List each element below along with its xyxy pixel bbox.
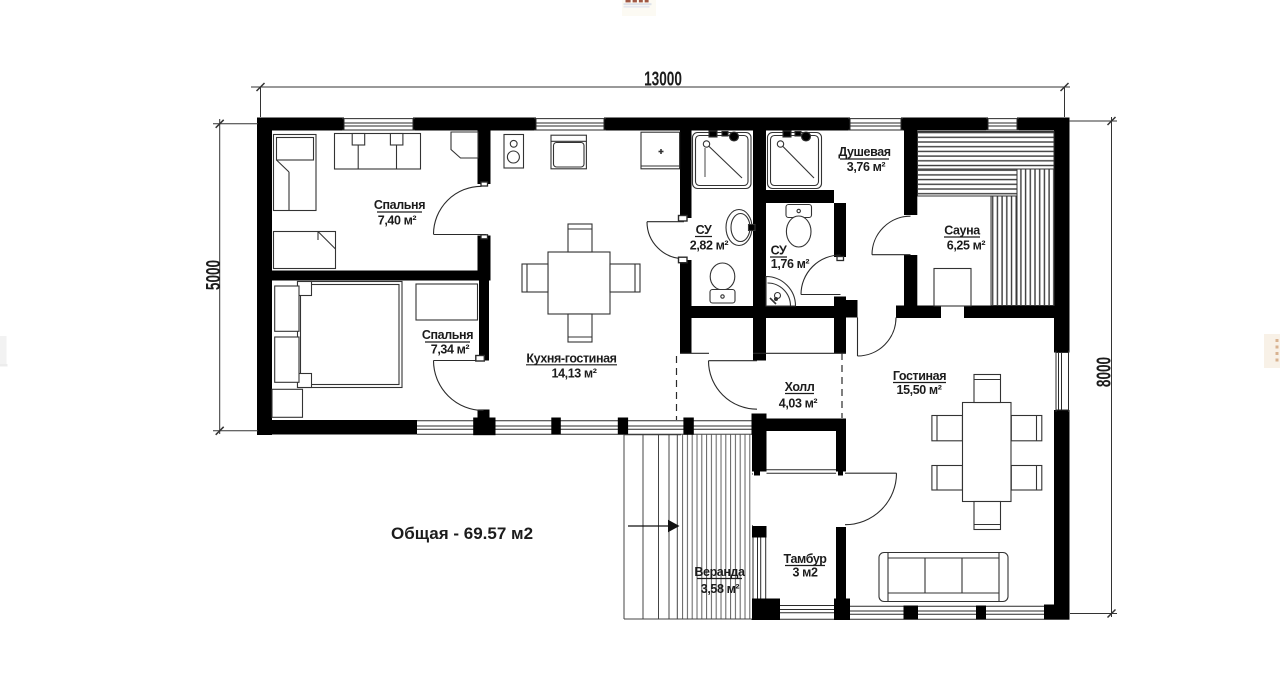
svg-text:3,76 м²: 3,76 м² bbox=[847, 160, 886, 174]
svg-text:15,50 м²: 15,50 м² bbox=[897, 383, 942, 397]
svg-text:Спальня: Спальня bbox=[374, 198, 425, 212]
svg-text:14,13 м²: 14,13 м² bbox=[552, 367, 597, 381]
svg-text:Гостиная: Гостиная bbox=[893, 369, 946, 383]
svg-text:5000: 5000 bbox=[202, 260, 224, 290]
svg-text:Общая - 69.57 м2: Общая - 69.57 м2 bbox=[391, 524, 533, 543]
svg-text:Сауна: Сауна bbox=[944, 224, 981, 238]
svg-text:Душевая: Душевая bbox=[838, 145, 890, 159]
svg-text:3 м2: 3 м2 bbox=[792, 566, 817, 580]
svg-text:СУ: СУ bbox=[696, 223, 712, 237]
svg-text:1,76 м²: 1,76 м² bbox=[771, 257, 810, 271]
svg-text:Веранда: Веранда bbox=[694, 565, 746, 579]
svg-text:7,40 м²: 7,40 м² bbox=[378, 214, 417, 228]
svg-text:3,58 м²: 3,58 м² bbox=[701, 582, 740, 596]
svg-text:13000: 13000 bbox=[644, 68, 682, 90]
svg-text:Тамбур: Тамбур bbox=[784, 552, 828, 566]
svg-text:6,25 м²: 6,25 м² bbox=[947, 239, 986, 253]
svg-text:Холл: Холл bbox=[785, 380, 815, 394]
svg-text:СУ: СУ bbox=[771, 244, 787, 258]
svg-text:4,03 м²: 4,03 м² bbox=[779, 397, 818, 411]
svg-text:7,34 м²: 7,34 м² bbox=[431, 343, 470, 357]
svg-text:Спальня: Спальня bbox=[422, 328, 473, 342]
svg-text:2,82 м²: 2,82 м² bbox=[690, 239, 729, 253]
svg-text:8000: 8000 bbox=[1093, 357, 1115, 387]
svg-text:Кухня-гостиная: Кухня-гостиная bbox=[526, 352, 616, 366]
